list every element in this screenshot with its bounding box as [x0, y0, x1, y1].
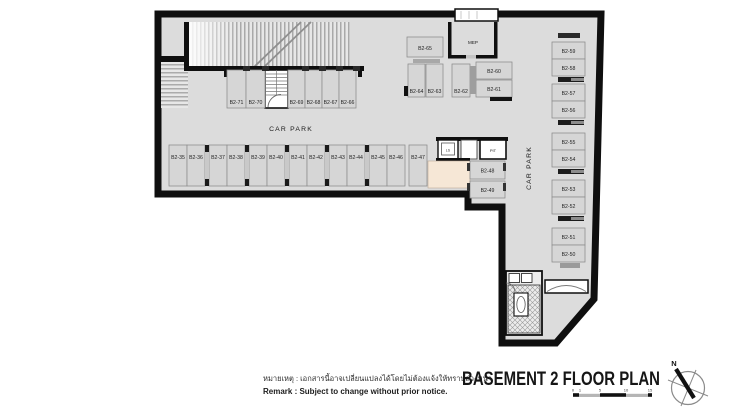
parking-spot: B2-38: [227, 145, 245, 186]
parking-spot-label: B2-66: [341, 100, 355, 106]
parking-spot-label: B2-45: [371, 155, 385, 161]
parking-spot: B2-67: [322, 70, 339, 108]
column-post: [205, 145, 209, 152]
parking-spot-label: B2-65: [418, 46, 432, 52]
column-post: [336, 66, 343, 71]
column-post: [571, 121, 584, 124]
column-post: [503, 183, 506, 191]
parking-spot-label: B2-51: [562, 235, 576, 241]
column-post: [470, 66, 476, 94]
parking-spot: B2-56: [552, 101, 585, 118]
parking-spot-label: B2-49: [481, 188, 495, 194]
lift-lobby: [428, 161, 470, 188]
parking-spot-label: B2-70: [249, 100, 263, 106]
ramp-fade: [186, 22, 238, 68]
parking-spot: B2-64: [408, 64, 425, 97]
parking-spot-label: B2-68: [307, 100, 321, 106]
pit-room-label: PIT: [490, 148, 497, 153]
parking-spot: B2-55: [552, 133, 585, 150]
floor-plan-drawing: MEP LS PIT CAR PARK CA: [0, 0, 745, 415]
parking-spot-label: B2-43: [331, 155, 345, 161]
parking-spot: B2-65: [407, 37, 443, 57]
parking-spot: B2-69: [288, 70, 305, 108]
parking-spot-label: B2-36: [189, 155, 203, 161]
parking-spot: B2-40: [267, 145, 285, 186]
parking-spot-label: B2-63: [428, 89, 442, 95]
column-post: [205, 179, 209, 186]
parking-spot: B2-44: [347, 145, 365, 186]
scale-tick: 10: [624, 388, 629, 393]
parking-spot: B2-71: [227, 70, 246, 108]
column-post: [245, 145, 249, 152]
parking-spot-label: B2-44: [349, 155, 363, 161]
parking-spot: B2-58: [552, 59, 585, 76]
plan-title: BASEMENT 2 FLOOR PLAN: [462, 369, 660, 390]
column-post: [503, 163, 506, 171]
column-post: [302, 66, 309, 71]
side-landing: [545, 280, 588, 293]
parking-spot: B2-70: [246, 70, 265, 108]
parking-spot: B2-68: [305, 70, 322, 108]
column-post: [365, 145, 369, 152]
parking-spot: B2-63: [426, 64, 443, 97]
parking-spot: B2-39: [249, 145, 267, 186]
interior-wall: [158, 56, 189, 62]
car-park-label-main: CAR PARK: [269, 126, 313, 133]
parking-spot-label: B2-50: [562, 252, 576, 258]
scale-tick: 15: [648, 388, 653, 393]
column-post: [560, 263, 580, 268]
parking-spot-label: B2-54: [562, 157, 576, 163]
parking-spot-label: B2-39: [251, 155, 265, 161]
parking-spot-label: B2-40: [269, 155, 283, 161]
parking-spot: B2-61: [476, 80, 512, 97]
stair-room-top: [265, 70, 288, 108]
mep-wall-left: [448, 22, 452, 58]
parking-spot-label: B2-64: [410, 89, 424, 95]
parking-spot-label: B2-37: [211, 155, 225, 161]
parking-spot: B2-36: [187, 145, 205, 186]
remark-english: Remark : Subject to change without prior…: [263, 387, 447, 396]
parking-spot-label: B2-35: [171, 155, 185, 161]
parking-spot: B2-54: [552, 150, 585, 167]
parking-spot-label: B2-57: [562, 91, 576, 97]
remark-thai: หมายเหตุ : เอกสารนี้อาจเปลี่ยนแปลงได้โดย…: [263, 373, 492, 383]
column-post: [571, 170, 584, 173]
parking-spot: B2-60: [476, 62, 512, 79]
mep-room-label: MEP: [468, 40, 478, 45]
parking-spot: B2-57: [552, 84, 585, 101]
column-post: [245, 179, 249, 186]
parking-spot: B2-66: [339, 70, 356, 108]
parking-spot-label: B2-42: [309, 155, 323, 161]
column-post: [571, 217, 584, 220]
parking-spot-label: B2-60: [487, 69, 501, 75]
parking-spot: B2-48: [470, 161, 505, 179]
parking-spot: B2-41: [289, 145, 307, 186]
parking-spot: B2-49: [470, 181, 505, 198]
column-post: [365, 179, 369, 186]
parking-spot: B2-35: [169, 145, 187, 186]
interior-wall: [184, 22, 189, 70]
column-post: [490, 97, 512, 101]
shaft-room: [461, 140, 477, 159]
column-post: [413, 59, 440, 63]
parking-spot-label: B2-53: [562, 187, 576, 193]
parking-spot: B2-42: [307, 145, 325, 186]
column-post: [285, 145, 289, 152]
parking-spot: B2-50: [552, 245, 585, 262]
vent-shaft: [455, 9, 498, 21]
parking-spot-label: B2-47: [411, 155, 425, 161]
compass-north-label: N: [671, 359, 676, 368]
parking-spot: B2-62: [452, 64, 470, 97]
parking-spot-label: B2-55: [562, 140, 576, 146]
parking-spot-label: B2-41: [291, 155, 305, 161]
parking-spot: B2-37: [209, 145, 227, 186]
column-post: [325, 179, 329, 186]
column-post: [558, 33, 580, 38]
parking-spot-label: B2-58: [562, 66, 576, 72]
column-post: [262, 66, 269, 71]
parking-spot: B2-43: [329, 145, 347, 186]
parking-spot-label: B2-46: [389, 155, 403, 161]
parking-spot-label: B2-56: [562, 108, 576, 114]
column-post: [285, 179, 289, 186]
lift-block-wall-bottom: [436, 158, 470, 161]
parking-spot-label: B2-69: [290, 100, 304, 106]
stair-core-bottom: [506, 271, 542, 335]
parking-spot: B2-46: [387, 145, 405, 186]
mep-wall-right: [494, 22, 498, 58]
column-post: [243, 66, 250, 71]
parking-spot: B2-45: [369, 145, 387, 186]
parking-spot: B2-53: [552, 180, 585, 197]
parking-spot-label: B2-61: [487, 87, 501, 93]
parking-spot-label: B2-59: [562, 49, 576, 55]
car-park-label-right: CAR PARK: [526, 146, 533, 190]
lift-label: LS: [446, 149, 451, 153]
floor-plan-page: MEP LS PIT CAR PARK CA: [0, 0, 745, 415]
parking-spot: B2-47: [409, 145, 427, 186]
column-post: [467, 183, 470, 191]
parking-spot-label: B2-52: [562, 204, 576, 210]
column-post: [467, 163, 470, 171]
parking-spot-label: B2-38: [229, 155, 243, 161]
parking-spot-label: B2-48: [481, 169, 495, 175]
column-post: [325, 145, 329, 152]
parking-spot: B2-52: [552, 197, 585, 214]
parking-spot: B2-51: [552, 228, 585, 245]
parking-spot-label: B2-71: [230, 100, 244, 106]
lower-ramp-hatch: [161, 62, 188, 108]
parking-spot-label: B2-62: [454, 89, 468, 95]
column-post: [319, 66, 326, 71]
parking-spot-label: B2-67: [324, 100, 338, 106]
column-post: [353, 66, 360, 71]
column-post: [404, 86, 408, 96]
compass-icon: N: [668, 359, 708, 406]
parking-spot: B2-59: [552, 42, 585, 59]
mep-door: [466, 55, 476, 59]
column-post: [571, 78, 584, 81]
